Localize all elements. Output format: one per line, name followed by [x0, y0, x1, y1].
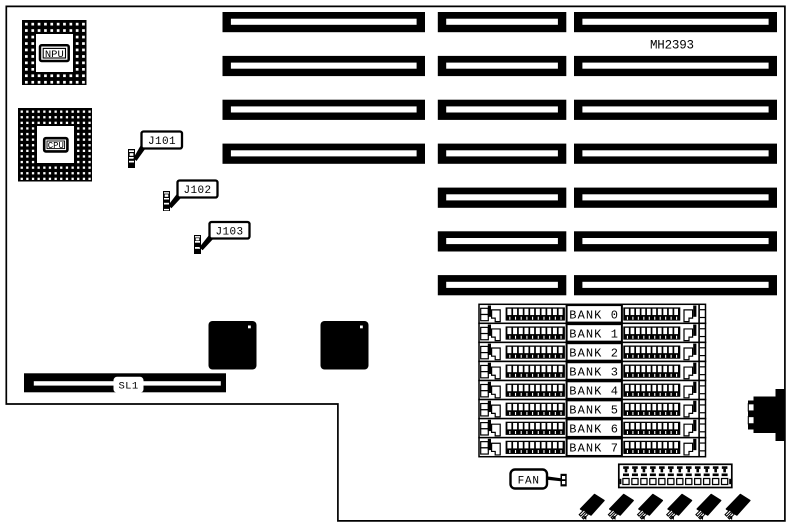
svg-text:BANK 5: BANK 5 — [569, 404, 619, 418]
svg-text:NPU: NPU — [45, 49, 64, 61]
svg-text:MH2393: MH2393 — [650, 39, 694, 53]
svg-text:J101: J101 — [148, 136, 176, 148]
svg-text:FAN: FAN — [518, 475, 540, 487]
svg-text:BANK 2: BANK 2 — [569, 347, 619, 361]
svg-text:SL1: SL1 — [118, 380, 138, 392]
svg-text:BANK 6: BANK 6 — [569, 423, 619, 437]
svg-text:CPU: CPU — [48, 141, 64, 151]
svg-text:BANK 0: BANK 0 — [569, 308, 619, 322]
svg-text:BANK 1: BANK 1 — [569, 327, 619, 341]
svg-text:BANK 4: BANK 4 — [569, 385, 619, 399]
svg-text:J103: J103 — [215, 226, 243, 238]
svg-text:BANK 3: BANK 3 — [569, 366, 619, 380]
svg-text:J102: J102 — [183, 185, 211, 197]
svg-text:BANK 7: BANK 7 — [569, 442, 619, 456]
